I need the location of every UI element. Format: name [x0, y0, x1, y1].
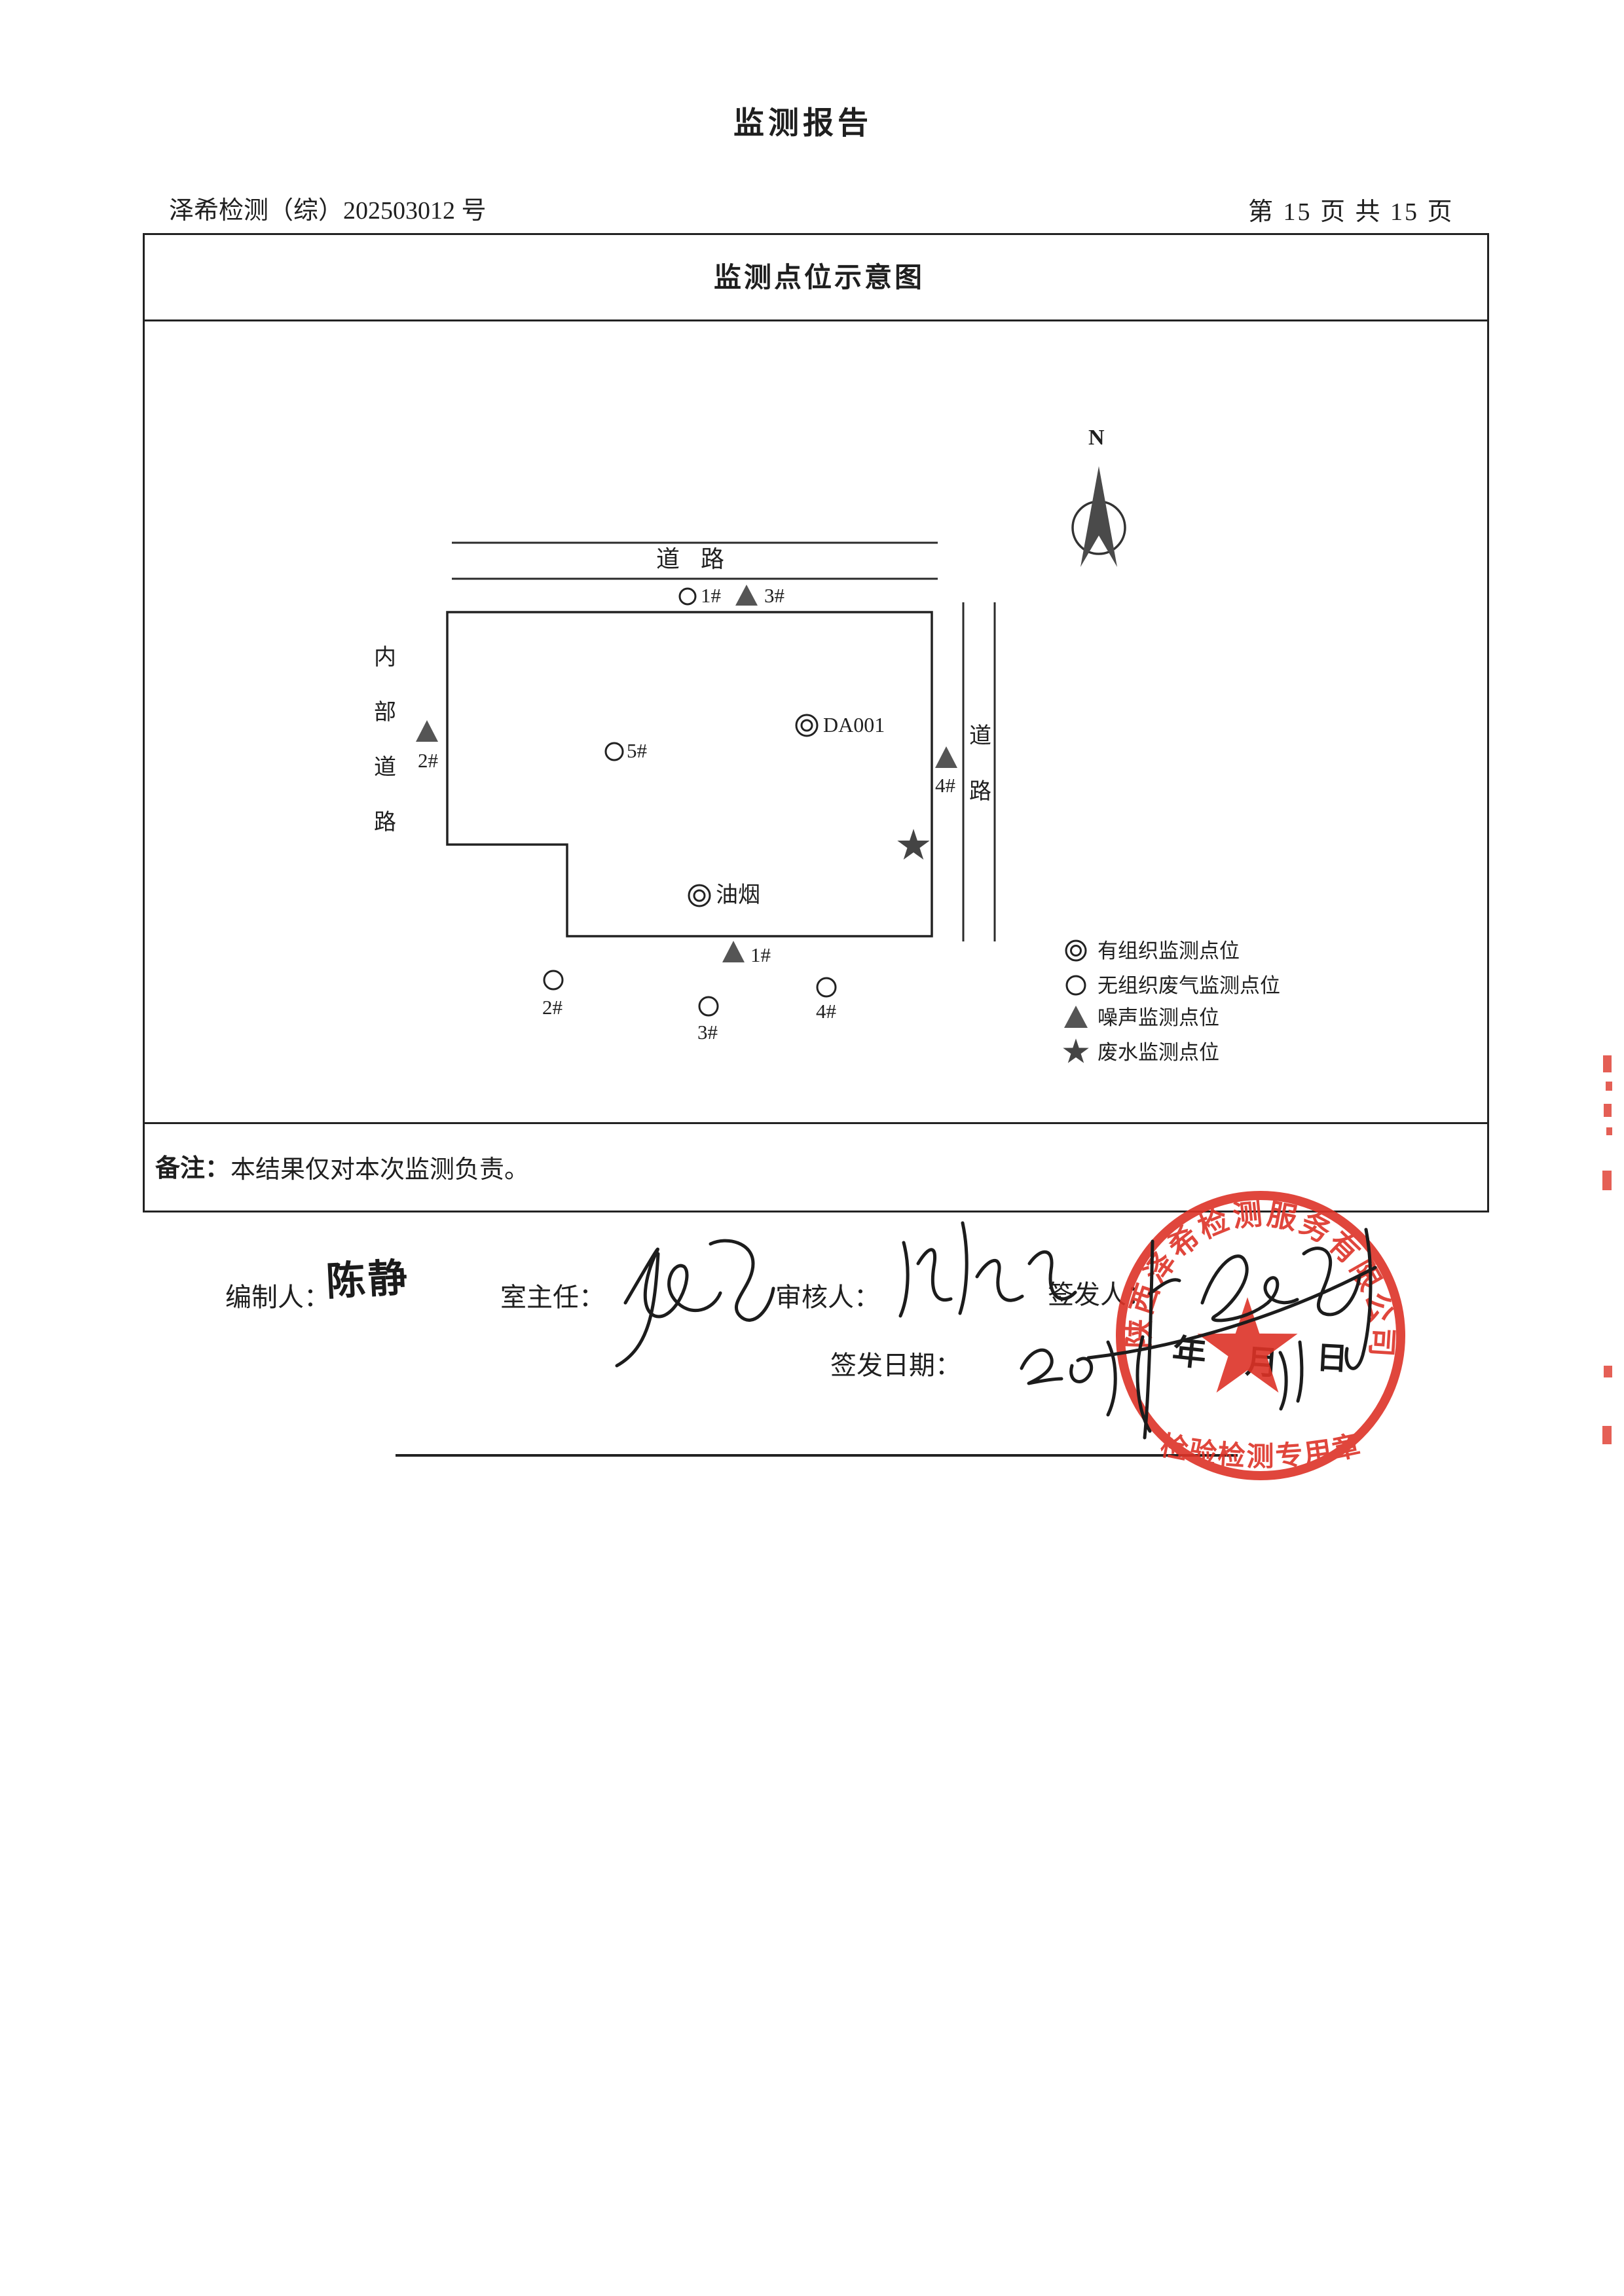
- double-circle-marker-DA001-outer: [796, 715, 817, 736]
- triangle-marker-west-2: [416, 720, 438, 742]
- double-circle-marker-fume-outer: [689, 885, 710, 906]
- circle-marker-top-1: [680, 589, 695, 604]
- right-road-lines: [963, 602, 995, 941]
- double-circle-marker-fume-inner: [694, 890, 705, 901]
- circle-marker-south-2: [544, 971, 563, 989]
- star-icon: [1063, 1038, 1089, 1063]
- stack-point-markers: [689, 715, 817, 906]
- handwritten-signatures: [617, 1223, 1375, 1438]
- page-edge-red-marks: [1602, 1055, 1612, 1444]
- circle-marker-south-4: [817, 978, 836, 996]
- building-outline: [447, 612, 932, 936]
- stamp-type-label: 检验检测专用章: [1158, 1429, 1365, 1472]
- diagram-artwork: 陕西泽希检测服务有限公司 检验检测专用章: [0, 0, 1624, 2296]
- stamp-star-icon: [1197, 1297, 1297, 1393]
- north-compass-icon: [1073, 466, 1125, 567]
- triangle-marker-east-4: [935, 746, 957, 768]
- triangle-marker-south-1: [722, 941, 745, 962]
- svg-text:检验检测专用章: 检验检测专用章: [1158, 1429, 1365, 1472]
- triangle-icon: [1064, 1006, 1088, 1028]
- report-page: 监测报告 泽希检测（综）202503012 号 第 15 页 共 15 页 监测…: [0, 0, 1624, 2296]
- legend-icons: [1063, 941, 1089, 1063]
- room-director-signature: [617, 1241, 773, 1366]
- noise-point-markers: [416, 585, 957, 962]
- double-circle-marker-DA001-inner: [802, 720, 812, 731]
- gas-point-markers: [544, 589, 836, 1015]
- circle-marker-south-3: [699, 997, 718, 1015]
- top-road-lines: [452, 543, 938, 579]
- double-circle-icon: [1066, 941, 1086, 960]
- company-stamp: 陕西泽希检测服务有限公司 检验检测专用章: [1120, 1195, 1401, 1476]
- reviewer-signature: [900, 1223, 1075, 1316]
- triangle-marker-top-3: [735, 585, 758, 606]
- circle-marker-5: [606, 743, 623, 760]
- star-marker-wastewater: [897, 829, 929, 860]
- circle-icon: [1067, 976, 1085, 994]
